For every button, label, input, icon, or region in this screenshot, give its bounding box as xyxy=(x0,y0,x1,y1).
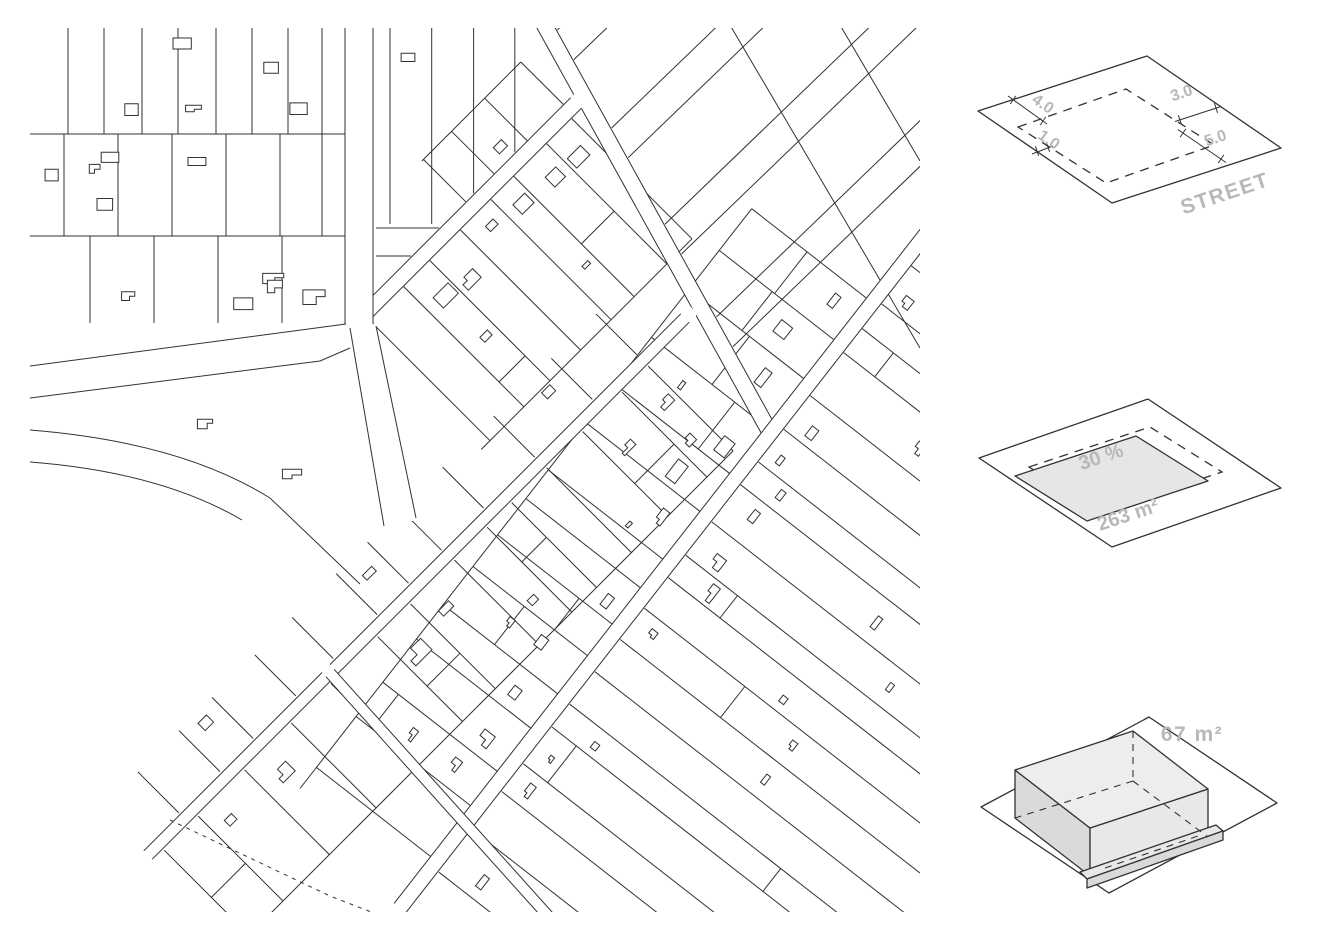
volume-area-label: 67 m² xyxy=(1161,723,1223,746)
building-volume-diagram: 67 m² xyxy=(930,685,1335,935)
site-coverage-diagram: 30 % 263 m² xyxy=(930,385,1335,580)
dim-5-0-label: 5.0 xyxy=(1202,127,1229,150)
cadastral-map xyxy=(30,28,920,912)
building-volume xyxy=(1015,731,1223,888)
setback-diagram: 4.0 1.0 3.0 5.0 STREET xyxy=(930,30,1335,255)
street-label: STREET xyxy=(1178,168,1272,219)
dim-1-0-label: 1.0 xyxy=(1035,127,1063,154)
district-top-left xyxy=(30,28,515,528)
planning-illustration-page: { "figures": { "setbacks": { "dims": { "… xyxy=(0,0,1335,942)
